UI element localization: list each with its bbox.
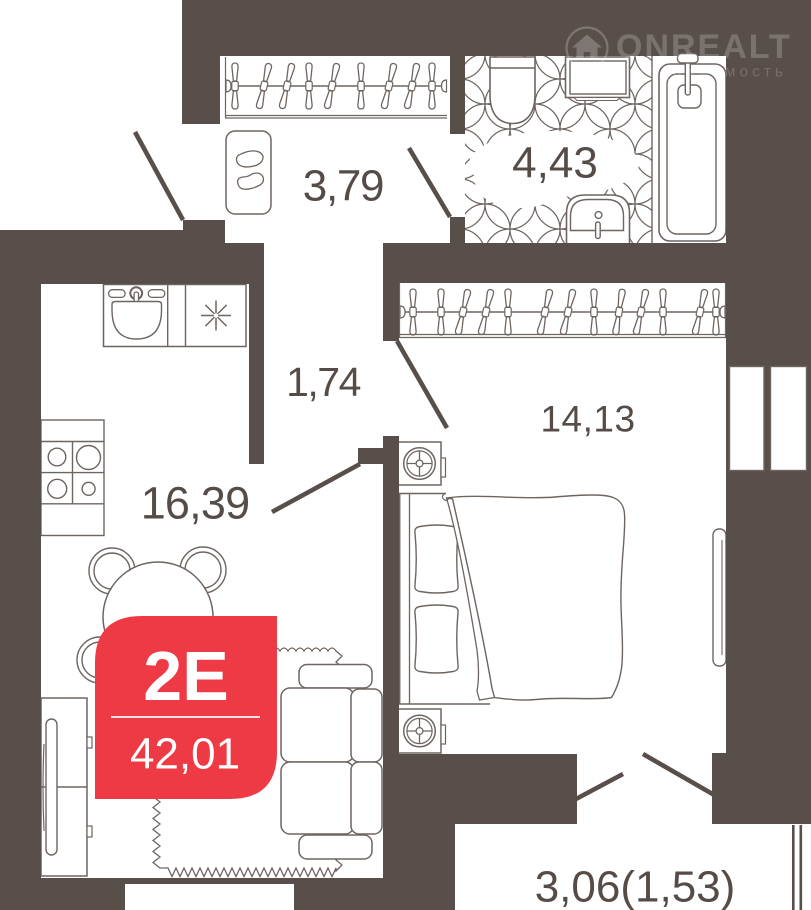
svg-text:16,39: 16,39 bbox=[141, 478, 250, 529]
svg-text:4,43: 4,43 bbox=[512, 139, 598, 188]
svg-text:2Е: 2Е bbox=[143, 637, 229, 715]
svg-text:3,06(1,53): 3,06(1,53) bbox=[535, 863, 736, 910]
svg-text:14,13: 14,13 bbox=[540, 399, 635, 440]
svg-text:42,01: 42,01 bbox=[130, 730, 240, 779]
svg-text:1,74: 1,74 bbox=[286, 359, 360, 405]
svg-text:ONREALT: ONREALT bbox=[616, 28, 792, 66]
svg-text:недвижимость: недвижимость bbox=[635, 64, 787, 81]
svg-text:3,79: 3,79 bbox=[303, 162, 383, 211]
